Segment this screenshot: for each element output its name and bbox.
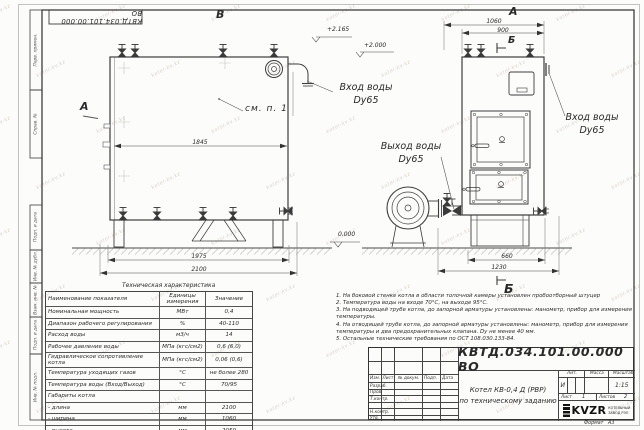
cell: мм <box>159 403 205 414</box>
cell: МПа (кгс/см2) <box>159 342 205 353</box>
dim-1060: 1060 <box>486 18 501 25</box>
table-row: Диапазон рабочего регулирования%40-110 <box>46 318 252 330</box>
dim-660: 660 <box>501 253 512 260</box>
outlet-label: Выход воды Dy65 <box>381 141 442 167</box>
frame-label-perv-primen: Перв. примен. <box>34 34 39 67</box>
cell: 40-110 <box>205 319 252 330</box>
cell: - длина <box>46 403 159 414</box>
tech-header-units: Единицы измерения <box>159 292 205 306</box>
tb-col-izm: Изм. <box>370 376 380 381</box>
tech-table: Наименование показателя Единицы измерени… <box>45 291 253 430</box>
inlet-label-front-dn: Dy65 <box>339 95 392 108</box>
dim-2100: 2100 <box>191 266 206 273</box>
tb-role-utv: Утв. <box>370 416 379 421</box>
upper-door <box>471 111 530 168</box>
top-flange <box>266 61 283 78</box>
tb-role-prov: Пров. <box>370 390 383 395</box>
note-4: 4. На отводящей трубе котла, до запорной… <box>336 322 639 336</box>
table-row: Габариты котла <box>46 390 252 402</box>
ground <box>72 248 572 255</box>
company-name: КОТЕЛЬНЫЙ ЗАВОД РЭП <box>608 406 630 415</box>
cell: не более 280 <box>205 368 252 379</box>
tech-header-name: Наименование показателя <box>46 292 159 306</box>
elev-0000: 0.000 <box>338 231 355 238</box>
cell: Расход воды <box>46 330 159 341</box>
supports <box>114 220 283 247</box>
see-note: см. п. 1 <box>245 104 288 114</box>
side-inlet-flange <box>546 63 549 76</box>
inlet-label-front: Вход воды Dy65 <box>339 82 392 108</box>
dimensions <box>100 21 559 276</box>
tb-col-data: Дата <box>442 376 453 381</box>
table-row: Гидравлическое сопротивление котлаМПа (к… <box>46 352 252 367</box>
cell: м3/ч <box>159 330 205 341</box>
tb-sheets-label: Листов <box>599 395 615 400</box>
cell: 2050 <box>205 426 252 430</box>
cell: 1060 <box>205 414 252 425</box>
inlet-elbow <box>288 64 314 116</box>
note-2: 2. Температура воды на входе 70°С, на вы… <box>336 300 639 307</box>
dim-900: 900 <box>497 27 508 34</box>
tb-col-dokum: № докум. <box>398 376 419 381</box>
cell: МПа (кгс/см2) <box>159 353 205 367</box>
cell: Диапазон рабочего регулирования <box>46 319 159 330</box>
tb-role-razrab: Разраб. <box>370 384 387 389</box>
inlet-label-side-dn: Dy65 <box>565 125 618 138</box>
format-value: А3 <box>608 421 614 426</box>
tb-mass-label: Масса <box>590 371 604 376</box>
format-label: Формат <box>584 421 603 426</box>
frame-label-podp-data-2: Подп. и дата <box>34 320 39 350</box>
cell: 0,4 <box>205 307 252 318</box>
frame-label-inv-podl: Инв. № подл. <box>34 372 39 402</box>
cell: 70/95 <box>205 380 252 391</box>
cell: Гидравлическое сопротивление котла <box>46 353 159 367</box>
cell: - ширина <box>46 414 159 425</box>
pedestal <box>471 215 529 246</box>
cell: Температура воды (Вход/Выход) <box>46 380 159 391</box>
front-arrow-label: А <box>80 100 89 113</box>
table-row: Расход водым3/ч14 <box>46 329 252 341</box>
elev-2165: +2.165 <box>327 26 349 33</box>
cell: МВт <box>159 307 205 318</box>
door-bolts <box>473 113 528 166</box>
drawing-sheet: kotel-kv.kzkotel-kv.kzkotel-kv.kzkotel-k… <box>0 0 644 430</box>
tb-col-podp: Подп. <box>424 376 437 381</box>
tb-lit-label: Лит. <box>567 371 577 376</box>
tb-col-list: Лист <box>383 376 394 381</box>
frame-label-vzam-inv: Взам. инв. № <box>34 285 39 315</box>
dim-1845: 1845 <box>192 139 207 146</box>
front-view-label: В <box>216 8 224 21</box>
dim-1230: 1230 <box>491 264 506 271</box>
tb-scale-label: Масштаб <box>613 371 633 376</box>
frame-label-inv-dubl: Инв. № дубл. <box>34 251 39 281</box>
doc-code-top: КВТД.034.101.00.000 ВО <box>49 10 142 24</box>
cell: - высота <box>46 426 159 430</box>
cell <box>159 391 205 402</box>
cell: мм <box>159 426 205 430</box>
table-row: - ширинамм1060 <box>46 413 252 425</box>
tech-header-value: Значение <box>205 292 252 306</box>
frame-label-sprav: Справ. № <box>34 113 39 134</box>
lower-door <box>463 170 528 204</box>
side-view <box>443 43 550 285</box>
center-marks <box>118 57 231 182</box>
fan-outlet-pipe <box>428 199 462 218</box>
cell: Номинальная мощность <box>46 307 159 318</box>
leaders <box>83 73 565 209</box>
tb-role-tkontr: Т.контр. <box>370 397 389 402</box>
inlet-label-side-text: Вход воды <box>565 112 618 125</box>
company-logo: KVZR КОТЕЛЬНЫЙ ЗАВОД РЭП <box>558 400 635 421</box>
section-markers <box>497 43 506 285</box>
table-row: Номинальная мощностьМВт0,4 <box>46 306 252 318</box>
note-1: 1. На боковой стенке котла в области топ… <box>336 293 639 300</box>
tb-lit-value: И <box>561 382 566 389</box>
cell: Температура уходящих газов <box>46 368 159 379</box>
table-row: Температура уходящих газов°Сне более 280 <box>46 367 252 379</box>
technical-notes: 1. На боковой стенке котла в области топ… <box>336 293 639 343</box>
cell: мм <box>159 414 205 425</box>
logo-text: KVZR <box>572 404 607 417</box>
note-3: 3. На подводящей трубе котла, до запорно… <box>336 307 639 321</box>
table-row: Рабочее давление водыМПа (кгс/см2)0,6 (6… <box>46 341 252 353</box>
cell: Рабочее давление воды <box>46 342 159 353</box>
tb-document-code: КВТД.034.101.00.000 ВО <box>458 348 635 370</box>
note-5: 5. Остальные технические требования по О… <box>336 336 639 343</box>
cell <box>205 391 252 402</box>
table-row: - высотамм2050 <box>46 425 252 430</box>
tech-table-title: Техническая характеристика <box>122 282 215 289</box>
tech-table-header-row: Наименование показателя Единицы измерени… <box>46 292 252 306</box>
tb-role-nkontr: Н.контр. <box>370 410 389 415</box>
elev-2000: +2.000 <box>364 42 386 49</box>
dim-1975: 1975 <box>191 253 206 260</box>
inlet-label-side: Вход воды Dy65 <box>565 112 618 138</box>
inlet-label-front-text: Вход воды <box>339 82 392 95</box>
side-view-label: А <box>509 5 518 18</box>
tb-sheet-label: Лист <box>561 395 572 400</box>
cell: 0,06 (0,6) <box>205 353 252 367</box>
tb-product-name: Котел КВ-0,4 Д (РВР) по техническому зад… <box>458 370 558 421</box>
tb-product-line2: по техническому заданию <box>459 396 556 407</box>
cell: 2100 <box>205 403 252 414</box>
cell: °С <box>159 368 205 379</box>
format-note: Формат А3 <box>584 421 614 426</box>
logo-mark-icon <box>563 404 570 417</box>
outlet-label-text: Выход воды <box>381 141 442 154</box>
cell: °С <box>159 380 205 391</box>
table-row: - длинамм2100 <box>46 402 252 414</box>
company-line2: ЗАВОД РЭП <box>608 411 630 415</box>
title-block: Изм. Лист № докум. Подп. Дата Разраб. Пр… <box>368 347 634 420</box>
door-bolts <box>472 171 526 203</box>
cell: % <box>159 319 205 330</box>
outlet-label-dn: Dy65 <box>381 154 442 167</box>
tb-scale-value: 1:15 <box>615 382 628 389</box>
frame-label-podp-data-1: Подп. и дата <box>34 212 39 242</box>
cell: Габариты котла <box>46 391 159 402</box>
cell: 14 <box>205 330 252 341</box>
tb-product-line1: Котел КВ-0,4 Д (РВР) <box>470 385 546 396</box>
left-stubs <box>103 124 110 169</box>
section-label-top: Б <box>508 35 515 46</box>
cell: 0,6 (6,0) <box>205 342 252 353</box>
table-row: Температура воды (Вход/Выход)°С70/95 <box>46 379 252 391</box>
